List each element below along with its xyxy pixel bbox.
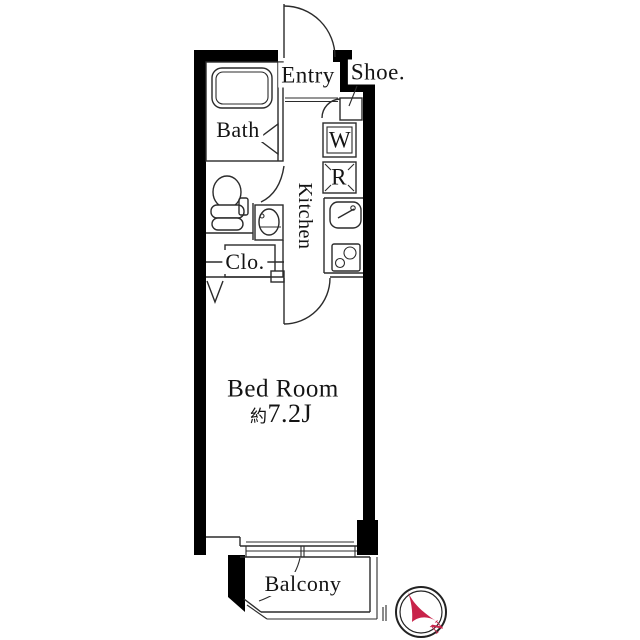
toilet-icon [211,176,248,230]
toilet-room [206,166,284,240]
entry-step [285,98,338,102]
room-label-kitchen: Kitchen [295,183,315,250]
room-label-balcony: Balcony [262,572,345,596]
kitchen-counter [324,198,363,273]
bath-room [206,62,283,161]
washbasin-icon [255,205,283,240]
size-value: 7.2J [267,399,312,428]
room-label-bath: Bath [213,118,263,142]
entry-door [284,4,335,58]
toilet-door-arc [261,166,284,202]
window [206,537,370,557]
floorplan: Entry Shoe. Bath Kitchen Clo. W R Bed Ro… [0,0,640,640]
room-label-entry: Entry [278,63,338,88]
label-refrigerator: R [331,166,347,189]
compass-needle [408,592,436,622]
closet-door-mark [207,281,223,302]
stove-icon [332,244,360,271]
room-size-bedroom: 約7.2J [250,401,312,427]
floorplan-drawing [0,0,640,640]
bedroom-door [284,278,330,324]
room-label-closet: Clo. [222,250,267,274]
sink-icon [330,202,361,228]
room-label-bedroom: Bed Room [227,377,339,402]
room-label-shoe: Shoe. [348,60,408,85]
label-washer: W [329,129,351,152]
size-prefix: 約 [250,407,268,426]
